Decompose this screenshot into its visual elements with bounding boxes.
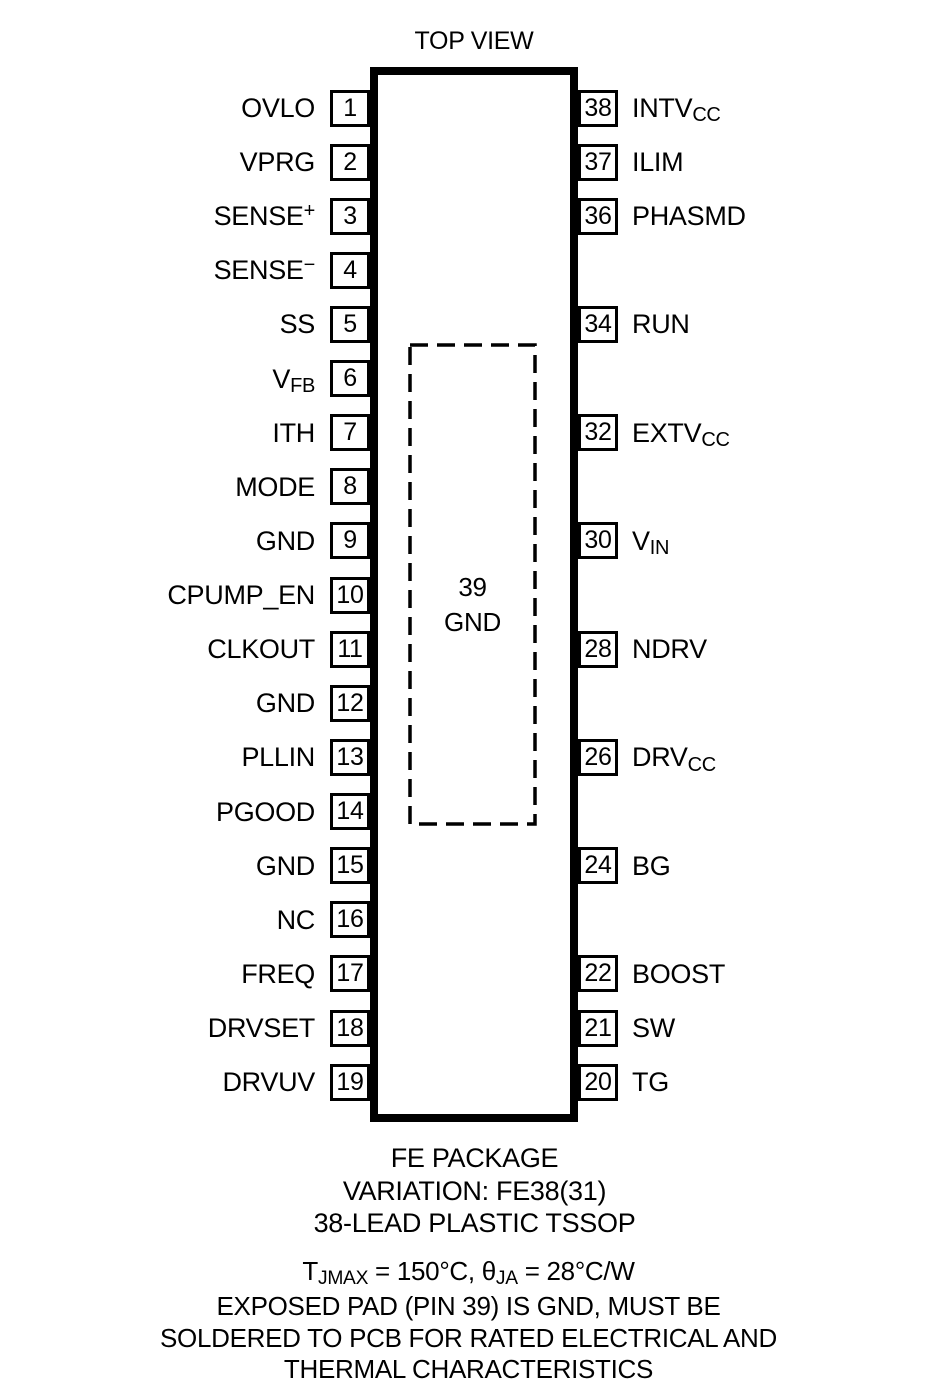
pin-label: DRVSET: [0, 1011, 315, 1045]
pin-label: EXTVCC: [632, 416, 932, 450]
pin-box: 24: [578, 847, 618, 884]
diagram-title: TOP VIEW: [370, 29, 578, 54]
pin-box: 2: [330, 144, 370, 181]
exposed-pad-label: GND: [408, 605, 537, 640]
pin-label: GND: [0, 849, 315, 883]
package-name-line: FE PACKAGE: [6, 1142, 937, 1175]
pin-label: VFB: [0, 362, 315, 396]
pin-label: ITH: [0, 416, 315, 450]
note-line: THERMAL CHARACTERISTICS: [0, 1354, 937, 1386]
pin-box: 38: [578, 90, 618, 127]
pin-box: 17: [330, 955, 370, 992]
pin-label: VPRG: [0, 145, 315, 179]
package-type-line: 38-LEAD PLASTIC TSSOP: [6, 1207, 937, 1240]
pin-box: 26: [578, 739, 618, 776]
pin-box: 8: [330, 468, 370, 505]
pin-box: 34: [578, 306, 618, 343]
pin-label: BOOST: [632, 957, 932, 991]
package-caption: FE PACKAGE VARIATION: FE38(31) 38-LEAD P…: [6, 1142, 937, 1240]
exposed-pad-number: 39: [408, 570, 537, 605]
pin-box: 37: [578, 144, 618, 181]
pin-label: SW: [632, 1011, 932, 1045]
pin-box: 4: [330, 252, 370, 289]
note-line: EXPOSED PAD (PIN 39) IS GND, MUST BE: [0, 1291, 937, 1323]
pin-label: INTVCC: [632, 91, 932, 125]
pin-box: 11: [330, 631, 370, 668]
note-line: TJMAX = 150°C, θJA = 28°C/W: [0, 1256, 937, 1291]
pin-box: 5: [330, 306, 370, 343]
pin-label: ILIM: [632, 145, 932, 179]
pin-box: 32: [578, 414, 618, 451]
pin-label: SS: [0, 307, 315, 341]
pin-label: PGOOD: [0, 795, 315, 829]
pin-box: 9: [330, 522, 370, 559]
pin-box: 12: [330, 685, 370, 722]
pin-label: CPUMP_EN: [0, 578, 315, 612]
pin-box: 20: [578, 1064, 618, 1101]
pin-box: 22: [578, 955, 618, 992]
pin-box: 7: [330, 414, 370, 451]
note-line: SOLDERED TO PCB FOR RATED ELECTRICAL AND: [0, 1323, 937, 1355]
pin-label: GND: [0, 524, 315, 558]
package-variation-line: VARIATION: FE38(31): [6, 1175, 937, 1208]
pin-box: 15: [330, 847, 370, 884]
thermal-note: TJMAX = 150°C, θJA = 28°C/WEXPOSED PAD (…: [0, 1256, 937, 1386]
pin-label: FREQ: [0, 957, 315, 991]
pin-box: 19: [330, 1064, 370, 1101]
pin-box: 13: [330, 739, 370, 776]
pin-label: TG: [632, 1065, 932, 1099]
pin-label: NDRV: [632, 632, 932, 666]
pin-box: 21: [578, 1010, 618, 1047]
pin-label: NC: [0, 903, 315, 937]
exposed-pad-text: 39 GND: [408, 570, 537, 640]
pin-label: DRVUV: [0, 1065, 315, 1099]
pin-label: VIN: [632, 524, 932, 558]
pin-box: 10: [330, 577, 370, 614]
pin-label: RUN: [632, 307, 932, 341]
pin-label: PHASMD: [632, 199, 932, 233]
pin-box: 3: [330, 198, 370, 235]
pin-box: 18: [330, 1010, 370, 1047]
pin-box: 30: [578, 522, 618, 559]
pin-label: MODE: [0, 470, 315, 504]
pin-label: GND: [0, 686, 315, 720]
pin-box: 28: [578, 631, 618, 668]
pin-label: SENSE−: [0, 253, 315, 287]
pin-box: 1: [330, 90, 370, 127]
pin-box: 6: [330, 360, 370, 397]
pin-box: 36: [578, 198, 618, 235]
pin-box: 16: [330, 901, 370, 938]
pin-label: DRVCC: [632, 740, 932, 774]
pin-label: SENSE+: [0, 199, 315, 233]
pin-box: 14: [330, 793, 370, 830]
pin-label: OVLO: [0, 91, 315, 125]
pin-label: BG: [632, 849, 932, 883]
pinout-diagram: TOP VIEW 39 GND 1OVLO2VPRG3SENSE+4SENSE−…: [0, 0, 937, 1397]
pin-label: CLKOUT: [0, 632, 315, 666]
pin-label: PLLIN: [0, 740, 315, 774]
